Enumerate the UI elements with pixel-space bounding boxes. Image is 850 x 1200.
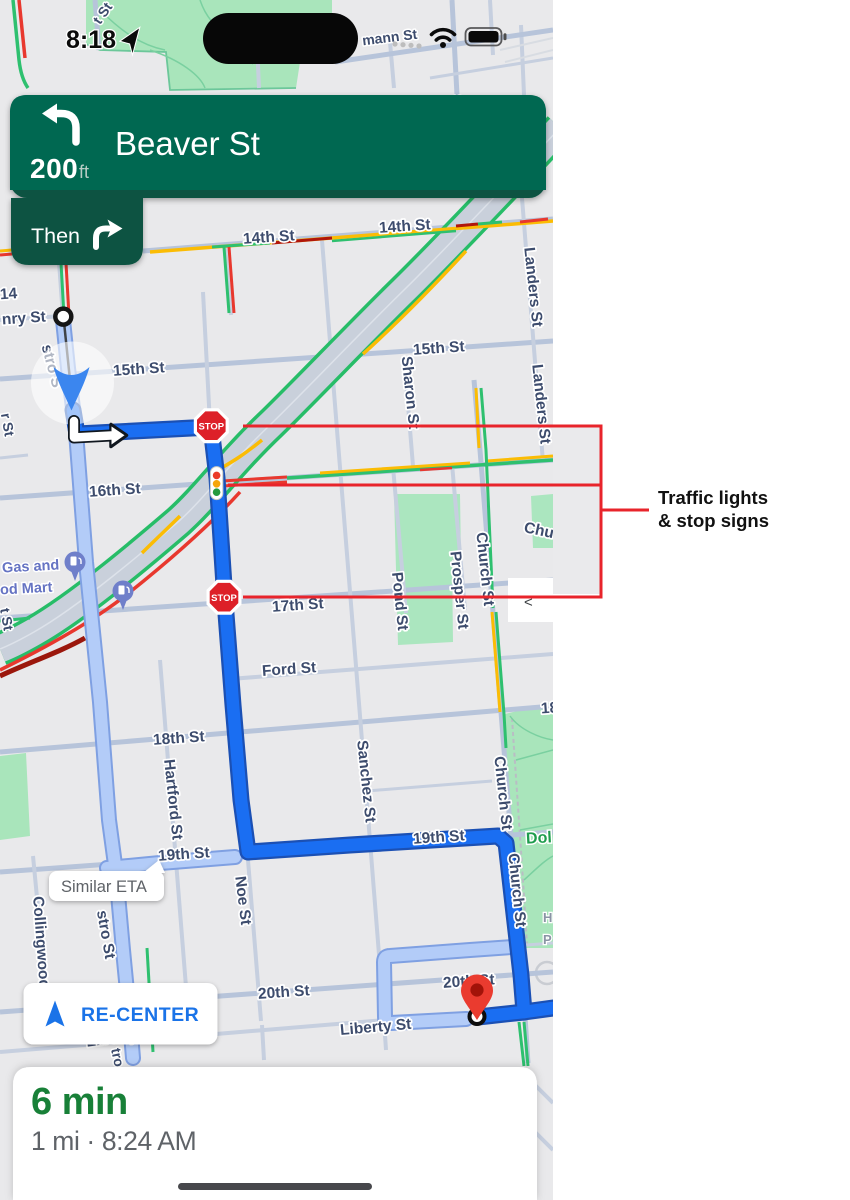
svg-text:& stop signs: & stop signs bbox=[658, 510, 769, 531]
svg-text:t St: t St bbox=[0, 607, 17, 632]
svg-text:nry St: nry St bbox=[1, 308, 46, 328]
svg-text:H: H bbox=[543, 910, 552, 925]
svg-text:od Mart: od Mart bbox=[0, 580, 53, 599]
svg-text:14th St: 14th St bbox=[242, 227, 295, 248]
svg-text:20th St: 20th St bbox=[257, 982, 310, 1003]
svg-text:STOP: STOP bbox=[211, 593, 237, 604]
svg-text:19th St: 19th St bbox=[412, 827, 465, 848]
svg-text:Similar ETA: Similar ETA bbox=[61, 878, 147, 896]
svg-text:r St: r St bbox=[0, 412, 18, 438]
svg-text:15th St: 15th St bbox=[412, 338, 465, 359]
svg-text:1 mi · 8:24 AM: 1 mi · 8:24 AM bbox=[31, 1126, 196, 1156]
svg-text:Gas and: Gas and bbox=[2, 557, 60, 576]
svg-text:200: 200 bbox=[30, 153, 78, 184]
svg-text:18th St: 18th St bbox=[152, 728, 205, 749]
svg-text:Then: Then bbox=[31, 224, 80, 248]
svg-text:Beaver St: Beaver St bbox=[115, 125, 260, 162]
svg-text:Traffic lights: Traffic lights bbox=[658, 487, 768, 508]
svg-text:Dol: Dol bbox=[526, 829, 553, 847]
svg-text:6 min: 6 min bbox=[31, 1081, 128, 1123]
svg-text:STOP: STOP bbox=[198, 421, 224, 432]
svg-text:14th St: 14th St bbox=[378, 216, 431, 237]
svg-text:16th St: 16th St bbox=[88, 480, 141, 501]
svg-text:P: P bbox=[543, 932, 552, 947]
svg-text:RE-CENTER: RE-CENTER bbox=[81, 1004, 199, 1026]
svg-text:14: 14 bbox=[0, 285, 18, 303]
svg-text:15th St: 15th St bbox=[112, 359, 165, 380]
svg-text:ft: ft bbox=[79, 162, 89, 182]
svg-text:8:18: 8:18 bbox=[66, 26, 116, 54]
svg-text:19th St: 19th St bbox=[157, 844, 210, 865]
